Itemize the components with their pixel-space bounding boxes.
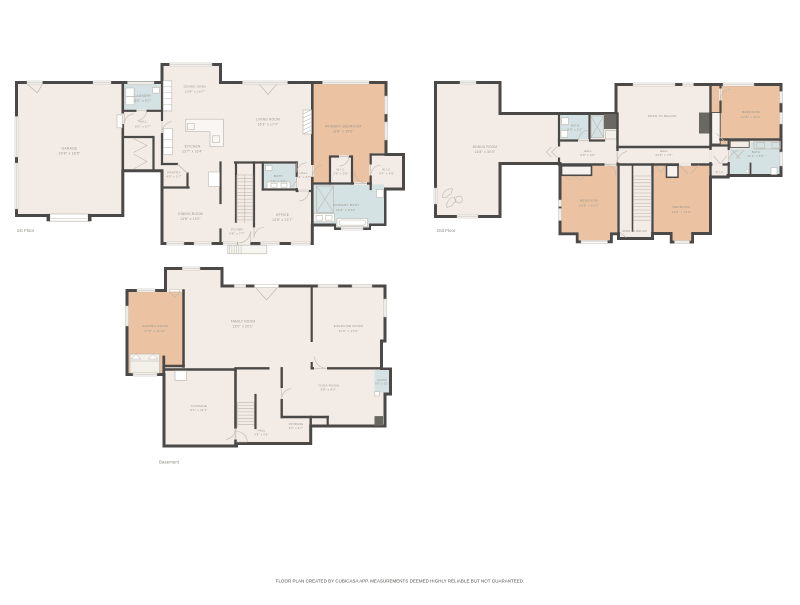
svg-text:PRIMARY BATH11'8" x 9'10": PRIMARY BATH11'8" x 9'10": [333, 203, 359, 212]
svg-text:PANTRY4'0" x 5'7": PANTRY4'0" x 5'7": [166, 171, 182, 179]
svg-text:KITCHEN13'7" x 16'4": KITCHEN13'7" x 16'4": [182, 145, 203, 154]
svg-text:FAMILY ROOM23'0" x 20'1": FAMILY ROOM23'0" x 20'1": [231, 320, 256, 329]
svg-text:OPEN TO BELOW: OPEN TO BELOW: [622, 229, 647, 233]
svg-text:DINING AREA13'6" x 10'7": DINING AREA13'6" x 10'7": [184, 85, 207, 94]
svg-text:LAUNDRY8'0" x 5'7": LAUNDRY8'0" x 5'7": [135, 94, 153, 103]
svg-text:LIVING ROOM16'3" x 17'4": LIVING ROOM16'3" x 17'4": [256, 118, 280, 127]
svg-text:SAUNA5'0" x 3'5": SAUNA5'0" x 3'5": [375, 379, 389, 385]
svg-text:W.I.C.: W.I.C.: [716, 170, 725, 174]
svg-text:YOGA ROOM9'8" x 8'0": YOGA ROOM9'8" x 8'0": [318, 384, 339, 392]
svg-text:BEDROOM14'8" x 13'4": BEDROOM14'8" x 13'4": [579, 199, 599, 208]
svg-text:STORAGE8'1" x 11'1": STORAGE8'1" x 11'1": [190, 404, 208, 412]
svg-text:FLOOR PLAN CREATED BY CUBICASA: FLOOR PLAN CREATED BY CUBICASA APP. MEAS…: [276, 578, 525, 583]
svg-text:BEDROOM12'8" x 11'0": BEDROOM12'8" x 11'0": [741, 110, 761, 119]
svg-text:DINING ROOM13'8" x 13'0": DINING ROOM13'8" x 13'0": [178, 212, 203, 221]
svg-text:OPEN TO BELOW: OPEN TO BELOW: [648, 114, 676, 118]
svg-text:BEDROOM13'6" x 11'9": BEDROOM13'6" x 11'9": [672, 205, 692, 214]
svg-text:Basement: Basement: [159, 460, 180, 465]
svg-text:2nd Floor: 2nd Floor: [437, 228, 457, 233]
svg-text:FOYER6'8" x 7'7": FOYER6'8" x 7'7": [229, 228, 245, 236]
svg-text:STORAGE5'6" x 3'7": STORAGE5'6" x 3'7": [289, 422, 304, 430]
svg-text:1st Floor: 1st Floor: [17, 228, 35, 233]
svg-text:GAMING ROOM17'8" x 11'11": GAMING ROOM17'8" x 11'11": [142, 324, 168, 333]
svg-text:BONUS ROOM16'8" x 30'0": BONUS ROOM16'8" x 30'0": [473, 145, 498, 154]
